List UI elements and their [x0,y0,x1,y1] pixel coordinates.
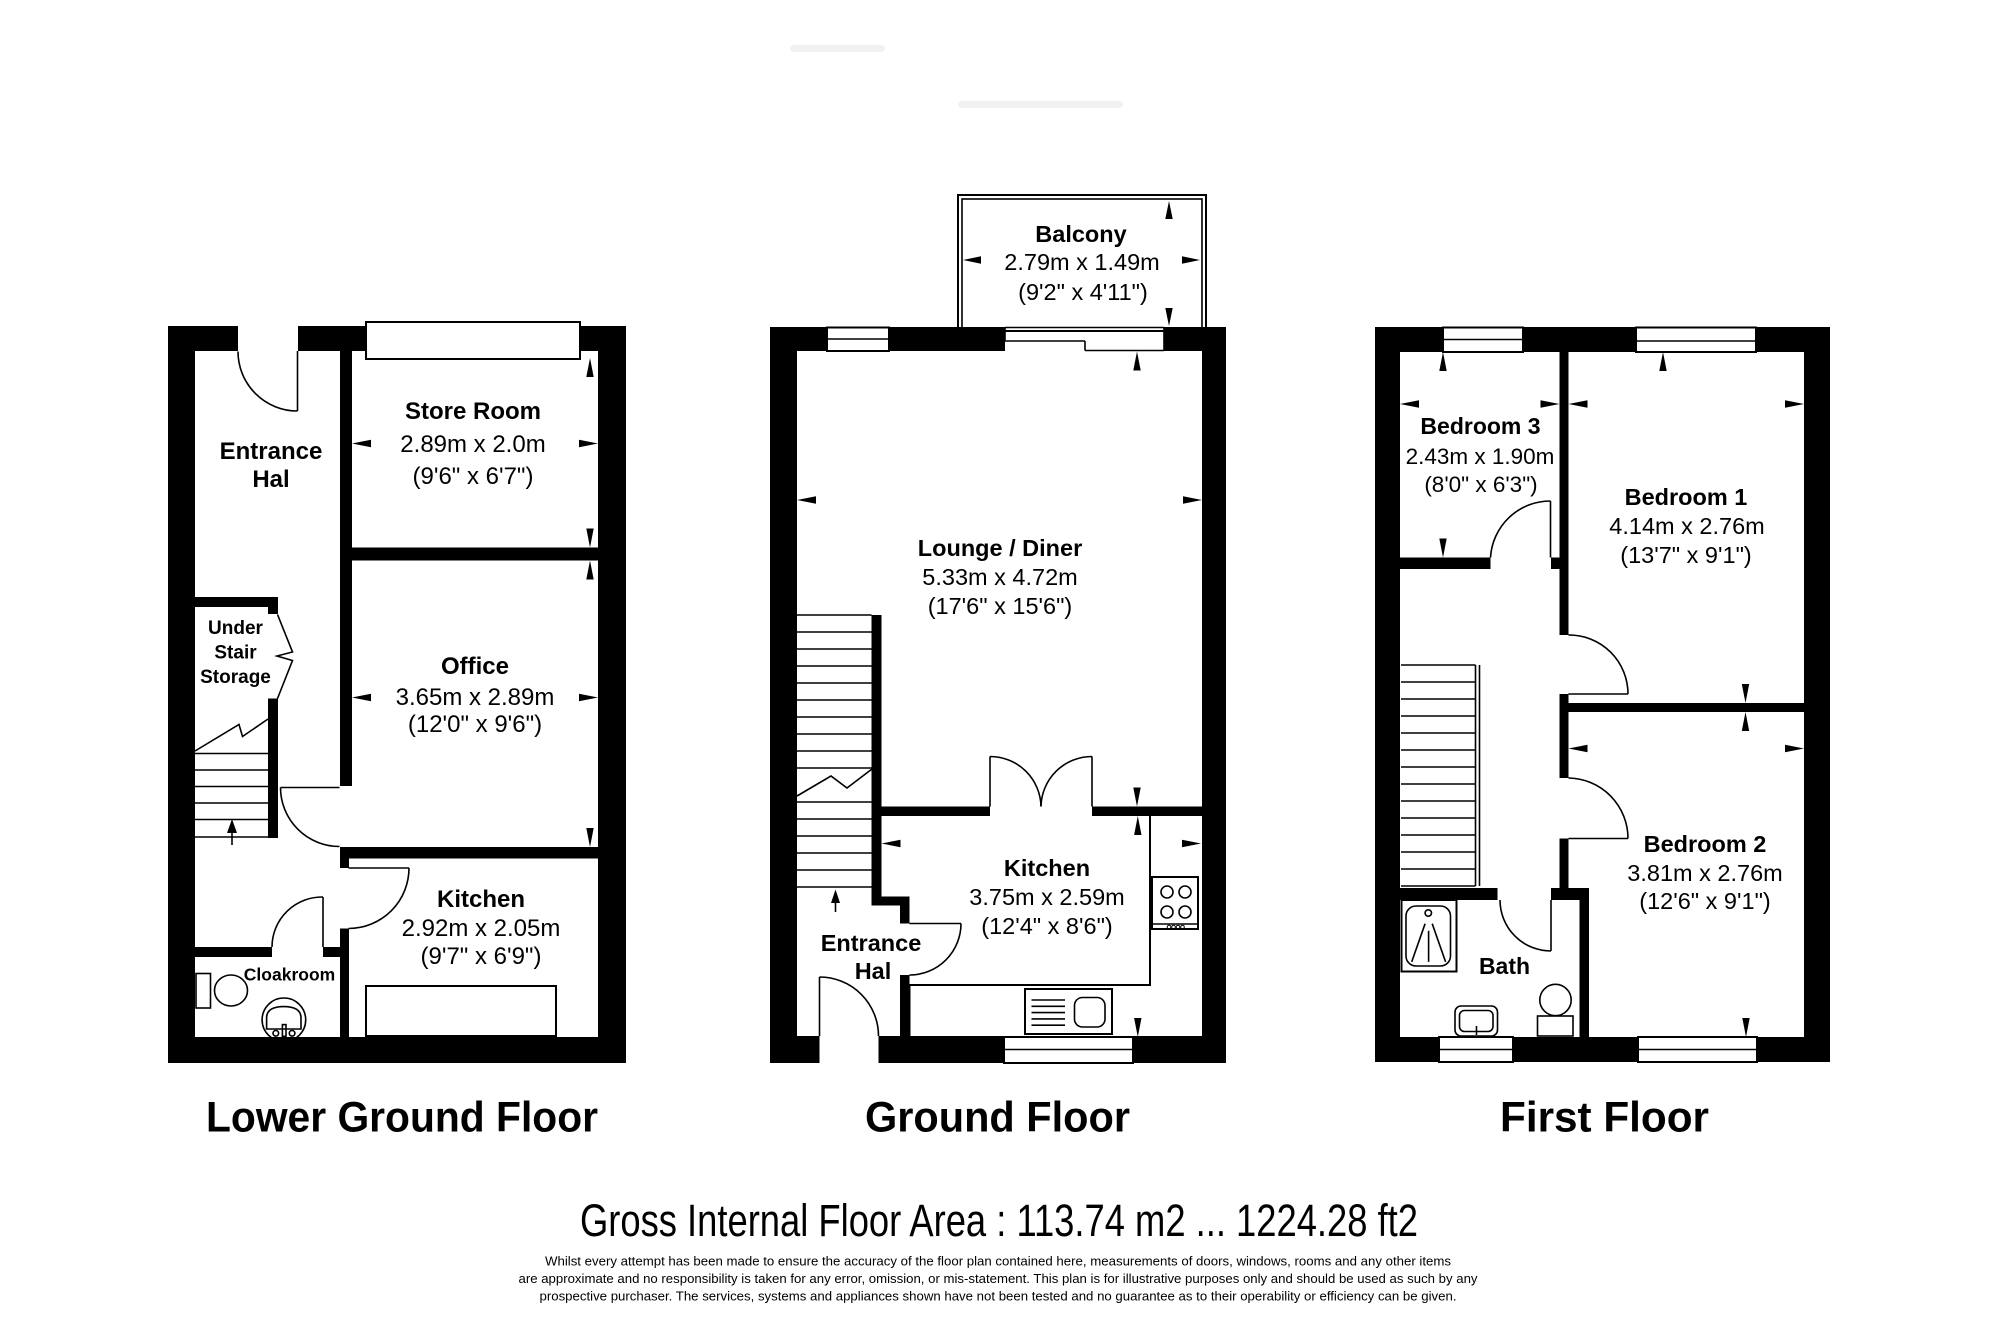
svg-text:prospective purchaser. The ser: prospective purchaser. The services, sys… [540,1290,1457,1304]
svg-text:2.89m x 2.0m: 2.89m x 2.0m [400,431,545,458]
svg-text:Gross Internal Floor Area : 11: Gross Internal Floor Area : 113.74 m2 ..… [580,1195,1418,1246]
svg-text:(12'6" x 9'1"): (12'6" x 9'1") [1639,888,1770,914]
svg-text:are approximate and no respons: are approximate and no responsibility is… [519,1272,1479,1286]
svg-text:Whilst every attempt has been: Whilst every attempt has been made to en… [545,1255,1451,1269]
svg-text:Ground Floor: Ground Floor [865,1094,1130,1142]
svg-text:Bedroom 1: Bedroom 1 [1625,484,1748,510]
svg-text:(12'4" x 8'6"): (12'4" x 8'6") [981,913,1112,939]
svg-text:Bedroom 3: Bedroom 3 [1420,413,1540,439]
svg-text:2.92m x 2.05m: 2.92m x 2.05m [402,915,561,942]
svg-text:2.79m x 1.49m: 2.79m x 1.49m [1004,249,1159,275]
svg-text:Bedroom 2: Bedroom 2 [1644,831,1767,857]
svg-text:(9'7" x 6'9"): (9'7" x 6'9") [421,943,542,970]
svg-text:5.33m x 4.72m: 5.33m x 4.72m [922,564,1077,590]
svg-text:Balcony: Balcony [1035,221,1126,247]
svg-text:3.65m x 2.89m: 3.65m x 2.89m [396,684,555,711]
svg-text:Kitchen: Kitchen [1004,855,1090,881]
svg-text:3.81m x 2.76m: 3.81m x 2.76m [1627,860,1782,886]
svg-text:Cloakroom: Cloakroom [244,965,335,985]
svg-text:Hal: Hal [855,958,892,984]
svg-text:(13'7" x 9'1"): (13'7" x 9'1") [1620,542,1751,568]
svg-text:Hal: Hal [252,466,289,493]
svg-text:First Floor: First Floor [1500,1094,1709,1142]
svg-text:Entrance: Entrance [821,930,922,956]
svg-text:(9'2" x 4'11"): (9'2" x 4'11") [1018,279,1148,305]
svg-text:Entrance: Entrance [220,438,323,465]
svg-text:Store Room: Store Room [405,398,541,425]
svg-text:(8'0" x 6'3"): (8'0" x 6'3") [1424,472,1537,497]
svg-text:Lower Ground Floor: Lower Ground Floor [206,1094,598,1142]
svg-text:3.75m x 2.59m: 3.75m x 2.59m [969,884,1124,910]
svg-text:Under: Under [208,618,264,639]
svg-text:(9'6" x 6'7"): (9'6" x 6'7") [413,463,534,490]
svg-text:2.43m x 1.90m: 2.43m x 1.90m [1406,444,1555,469]
svg-text:(17'6" x 15'6"): (17'6" x 15'6") [928,593,1073,619]
svg-text:Storage: Storage [200,667,271,688]
svg-text:Bath: Bath [1479,953,1530,979]
svg-text:Office: Office [441,653,509,680]
svg-text:Kitchen: Kitchen [437,886,525,913]
svg-text:Lounge / Diner: Lounge / Diner [918,535,1083,561]
svg-text:(12'0" x 9'6"): (12'0" x 9'6") [408,711,542,738]
svg-text:4.14m x 2.76m: 4.14m x 2.76m [1609,513,1764,539]
svg-text:Stair: Stair [214,643,257,664]
